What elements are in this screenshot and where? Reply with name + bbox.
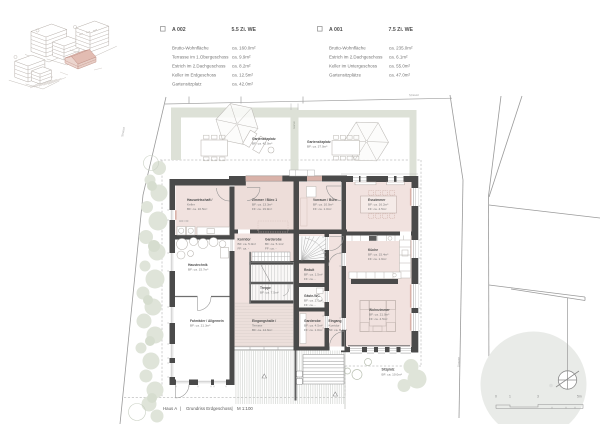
- svg-text:BF: ca. 37.0m²: BF: ca. 37.0m²: [307, 145, 327, 149]
- svg-text:ca. 9.9m²: ca. 9.9m²: [232, 55, 251, 60]
- svg-text:ca. 8.2m²: ca. 8.2m²: [232, 64, 251, 69]
- svg-text:Treppe: Treppe: [260, 286, 271, 290]
- svg-text:Garderobe: Garderobe: [304, 319, 321, 323]
- svg-text:ca. 47.0m²: ca. 47.0m²: [389, 73, 410, 78]
- svg-text:0: 0: [495, 395, 497, 399]
- svg-text:400 / 60: 400 / 60: [179, 219, 189, 223]
- svg-text:FF: ca. 1.9m²: FF: ca. 1.9m²: [368, 257, 386, 261]
- svg-text:ca. 12.5m²: ca. 12.5m²: [232, 73, 253, 78]
- svg-text:FF: ca. 19.9m²: FF: ca. 19.9m²: [252, 207, 272, 211]
- svg-text:Terrase: Terrase: [252, 324, 263, 328]
- svg-text:A 002: A 002: [172, 27, 186, 33]
- svg-text:Brutto-Wohnfläche: Brutto-Wohnfläche: [172, 46, 209, 51]
- svg-text:|: |: [180, 406, 181, 411]
- svg-text:BF: ca. 15.4m²: BF: ca. 15.4m²: [368, 253, 388, 257]
- svg-text:FF: ca. -: FF: ca. -: [238, 247, 250, 251]
- svg-text:Vorraum / Büro: Vorraum / Büro: [313, 198, 337, 202]
- svg-text:FF: ca. 1.0m²: FF: ca. 1.0m²: [313, 207, 331, 211]
- svg-text:Fahrräder / Allgemein: Fahrräder / Allgemein: [190, 319, 224, 323]
- svg-text:Hauswirtschaft /: Hauswirtschaft /: [187, 198, 213, 202]
- svg-text:1: 1: [509, 395, 511, 399]
- svg-text:Gartensitzplatz: Gartensitzplatz: [172, 82, 202, 87]
- svg-text:Keller: Keller: [187, 203, 195, 207]
- svg-text:BF: ca. 14.6m²: BF: ca. 14.6m²: [252, 328, 272, 332]
- svg-text:FF: ca. 4.5m²: FF: ca. 4.5m²: [369, 317, 387, 321]
- svg-text:Haustechnik: Haustechnik: [188, 263, 208, 267]
- svg-text:Grundriss Erdgeschoss: Grundriss Erdgeschoss: [186, 406, 232, 411]
- svg-text:Strasse: Strasse: [409, 93, 420, 97]
- svg-text:BF: ca. 13.3m²: BF: ca. 13.3m²: [252, 203, 272, 207]
- svg-text:3: 3: [537, 395, 539, 399]
- svg-text:Küche: Küche: [368, 248, 378, 252]
- svg-text:Korridor: Korridor: [238, 238, 252, 242]
- svg-text:FF: ca. -: FF: ca. -: [265, 247, 277, 251]
- svg-text:M 1:100: M 1:100: [237, 406, 253, 411]
- svg-text:ca. 235.0m²: ca. 235.0m²: [389, 46, 413, 51]
- svg-text:BF: ca. 1.5m²: BF: ca. 1.5m²: [304, 273, 323, 277]
- svg-text:Reduit: Reduit: [304, 268, 315, 272]
- svg-text:Garten: Garten: [292, 120, 296, 128]
- svg-text:FF: ca. -: FF: ca. -: [304, 303, 316, 307]
- svg-text:5m: 5m: [577, 395, 582, 399]
- svg-text:Estrich im 2.Dachgeschoss: Estrich im 2.Dachgeschoss: [329, 55, 383, 60]
- svg-text:BF: ca. 7.5m²: BF: ca. 7.5m²: [260, 291, 279, 295]
- svg-text:BF: ca. 2.7m²: BF: ca. 2.7m²: [304, 299, 323, 303]
- svg-text:7.5 Zi. WE: 7.5 Zi. WE: [389, 27, 414, 33]
- svg-text:Terrasse im 1.Obergeschoss: Terrasse im 1.Obergeschoss: [172, 55, 229, 60]
- svg-text:Gäste-WC: Gäste-WC: [304, 294, 320, 298]
- svg-text:Gartensitzplätze: Gartensitzplätze: [329, 73, 362, 78]
- svg-text:BF: ca. 10.0m²: BF: ca. 10.0m²: [313, 203, 333, 207]
- svg-text:BF: ca. 5.1m²: BF: ca. 5.1m²: [265, 242, 284, 246]
- svg-text:ca. 6.1m²: ca. 6.1m²: [389, 55, 408, 60]
- svg-text:BF: ca. 10.0m²: BF: ca. 10.0m²: [382, 373, 402, 377]
- svg-text:BF: ca. 16.2m²: BF: ca. 16.2m²: [368, 203, 388, 207]
- svg-text:BF: ca. 21.0m²: BF: ca. 21.0m²: [369, 313, 389, 317]
- svg-text:ca. 55.0m²: ca. 55.0m²: [389, 64, 410, 69]
- svg-text:BF: ca. 42.0m²: BF: ca. 42.0m²: [252, 142, 272, 146]
- svg-text:ca. 42.0m²: ca. 42.0m²: [232, 82, 253, 87]
- svg-text:Estrich im 2.Dachgeschoss: Estrich im 2.Dachgeschoss: [172, 64, 226, 69]
- svg-text:5.5 Zi. WE: 5.5 Zi. WE: [232, 27, 257, 33]
- svg-text:|: |: [232, 406, 233, 411]
- svg-text:Esszimmer: Esszimmer: [368, 198, 386, 202]
- svg-text:Gartensitzplatz: Gartensitzplatz: [307, 140, 331, 144]
- svg-text:BF: ca. 5.0m²: BF: ca. 5.0m²: [238, 242, 257, 246]
- svg-text:Keller im Erdgeschoss: Keller im Erdgeschoss: [172, 73, 217, 78]
- svg-text:Garderobe: Garderobe: [265, 238, 282, 242]
- svg-text:Strasse: Strasse: [457, 357, 461, 368]
- svg-text:BF: ca. 9.3m²: BF: ca. 9.3m²: [329, 328, 348, 332]
- svg-text:Haus A: Haus A: [163, 406, 177, 411]
- svg-text:FF: ca. 1.0m²: FF: ca. 1.0m²: [304, 328, 322, 332]
- svg-text:FF: ca. 4.5m²: FF: ca. 4.5m²: [368, 207, 386, 211]
- svg-text:FF: ca. -: FF: ca. -: [304, 277, 316, 281]
- svg-text:Wohnzimmer: Wohnzimmer: [369, 308, 390, 312]
- svg-text:BF: ca. 15.7m²: BF: ca. 15.7m²: [188, 268, 208, 272]
- svg-text:A 001: A 001: [329, 27, 343, 33]
- svg-text:ca. 160.0m²: ca. 160.0m²: [232, 46, 256, 51]
- svg-text:Eingang: Eingang: [329, 319, 342, 323]
- svg-text:Gartensitzplatz: Gartensitzplatz: [252, 137, 276, 141]
- svg-text:Sitzplatz: Sitzplatz: [382, 368, 395, 372]
- svg-text:Keller im Untergeschoss: Keller im Untergeschoss: [329, 64, 378, 69]
- svg-text:Eingangshalle /: Eingangshalle /: [252, 319, 276, 323]
- svg-text:Brutto-Wohnfläche: Brutto-Wohnfläche: [329, 46, 366, 51]
- svg-text:BF: ca. 10.5m²: BF: ca. 10.5m²: [187, 207, 207, 211]
- svg-text:Zimmer / Büro 1: Zimmer / Büro 1: [252, 198, 277, 202]
- svg-text:BF: ca. 21.3m²: BF: ca. 21.3m²: [190, 324, 210, 328]
- svg-text:BF: ca. 4.5m²: BF: ca. 4.5m²: [304, 324, 323, 328]
- svg-text:Korridor: Korridor: [329, 324, 340, 328]
